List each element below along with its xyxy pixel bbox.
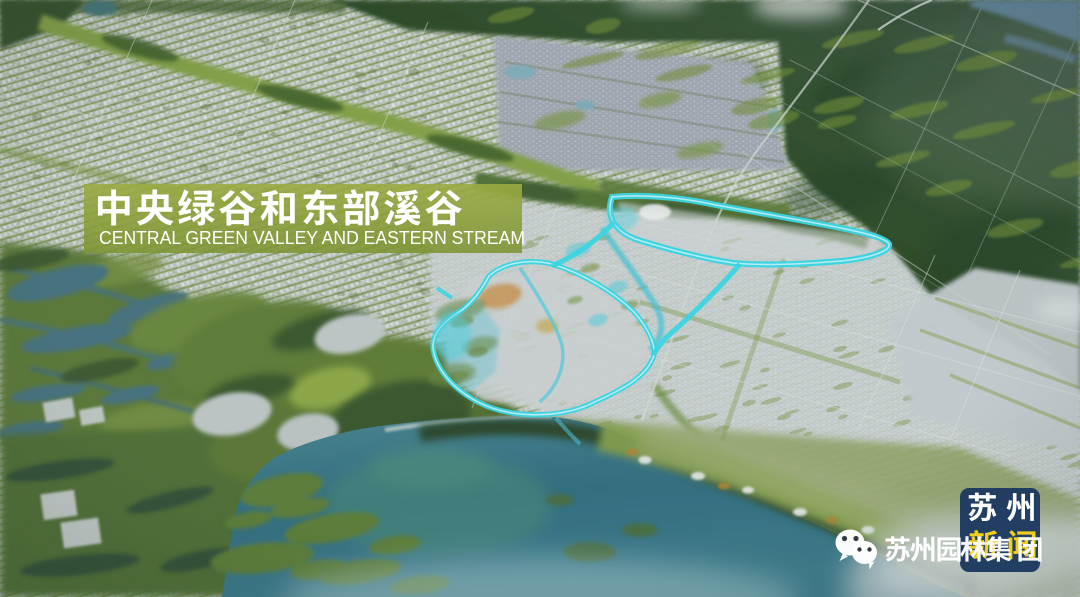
svg-text:CENTRAL GREEN VALLEY AND EASTE: CENTRAL GREEN VALLEY AND EASTERN STREAM [99, 228, 525, 248]
